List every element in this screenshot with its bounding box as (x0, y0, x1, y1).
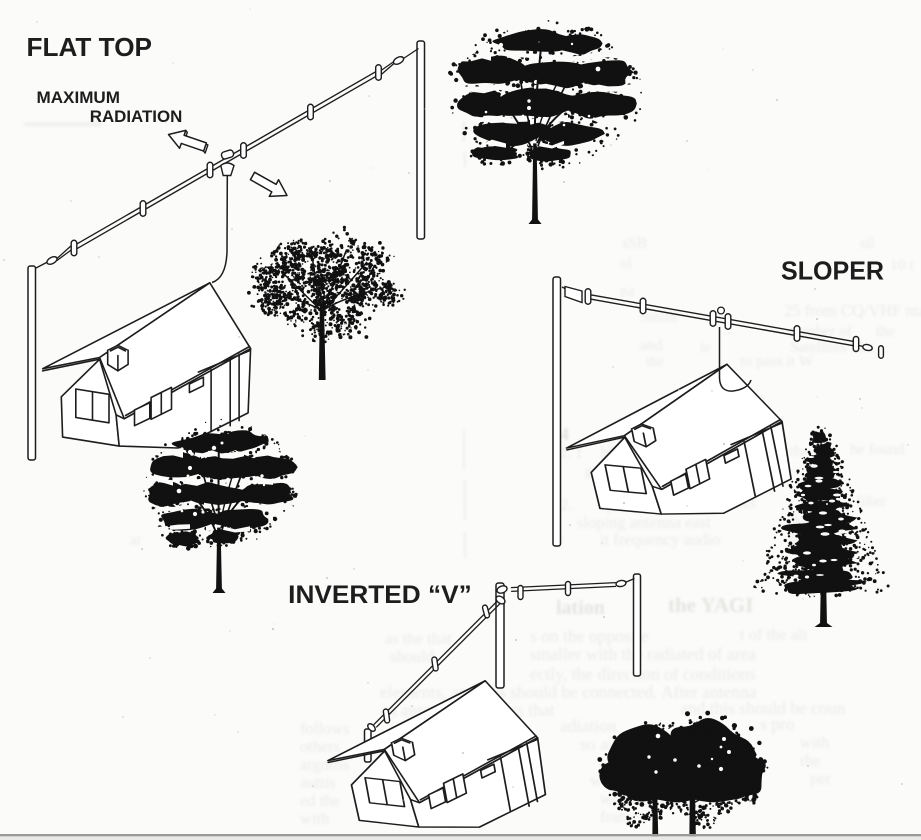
svg-text:it frequency audio: it frequency audio (600, 530, 720, 549)
svg-text:sSB: sSB (622, 235, 647, 252)
svg-text:ectly, the direction of condit: ectly, the direction of conditions (530, 664, 756, 684)
svg-text:ed the: ed the (300, 791, 340, 810)
svg-text:others: others (300, 737, 340, 756)
svg-text:with: with (800, 733, 830, 752)
svg-text:lation: lation (556, 597, 605, 619)
svg-text:follows: follows (300, 719, 350, 738)
svg-text:RADIATION: RADIATION (90, 107, 183, 126)
svg-text:25 from CQ/VHF ma: 25 from CQ/VHF ma (784, 301, 921, 320)
svg-text:s on the opposite: s on the opposite (530, 626, 648, 646)
svg-text:FLAT TOP: FLAT TOP (27, 34, 153, 62)
svg-text:MAXIMUM: MAXIMUM (37, 88, 121, 107)
svg-text:the: the (646, 354, 664, 370)
svg-text:s pro: s pro (760, 714, 795, 734)
svg-text:with: with (300, 809, 330, 828)
svg-text:le: le (700, 340, 710, 356)
svg-text:he found: he found (850, 441, 905, 458)
svg-text:SLOPER: SLOPER (781, 256, 884, 286)
svg-text:should: should (390, 647, 435, 666)
svg-text:smaller with the radiated of a: smaller with the radiated of area (530, 644, 756, 664)
svg-text:10 t: 10 t (890, 257, 914, 274)
svg-text:sil: sil (860, 235, 875, 252)
svg-text:and: and (640, 337, 663, 354)
svg-text:the: the (800, 751, 820, 770)
svg-text:the: the (876, 323, 895, 340)
svg-text:the: the (790, 443, 809, 460)
svg-text:at: at (130, 532, 142, 549)
svg-text:na: na (620, 283, 635, 300)
svg-text:auttis: auttis (300, 773, 336, 792)
svg-text:as the that: as the that (385, 629, 452, 648)
svg-text:adiation: adiation (560, 716, 617, 736)
svg-text:INVERTED “V”: INVERTED “V” (288, 581, 472, 609)
svg-text:4: 4 (560, 424, 569, 444)
svg-text:the YAGI: the YAGI (668, 593, 753, 617)
svg-text:to pass it W: to pass it W (740, 353, 814, 370)
svg-text:ol: ol (620, 255, 632, 272)
svg-text:2.: 2. (560, 495, 572, 514)
svg-text:t of the alt: t of the alt (740, 625, 808, 644)
svg-text:per: per (810, 769, 832, 788)
